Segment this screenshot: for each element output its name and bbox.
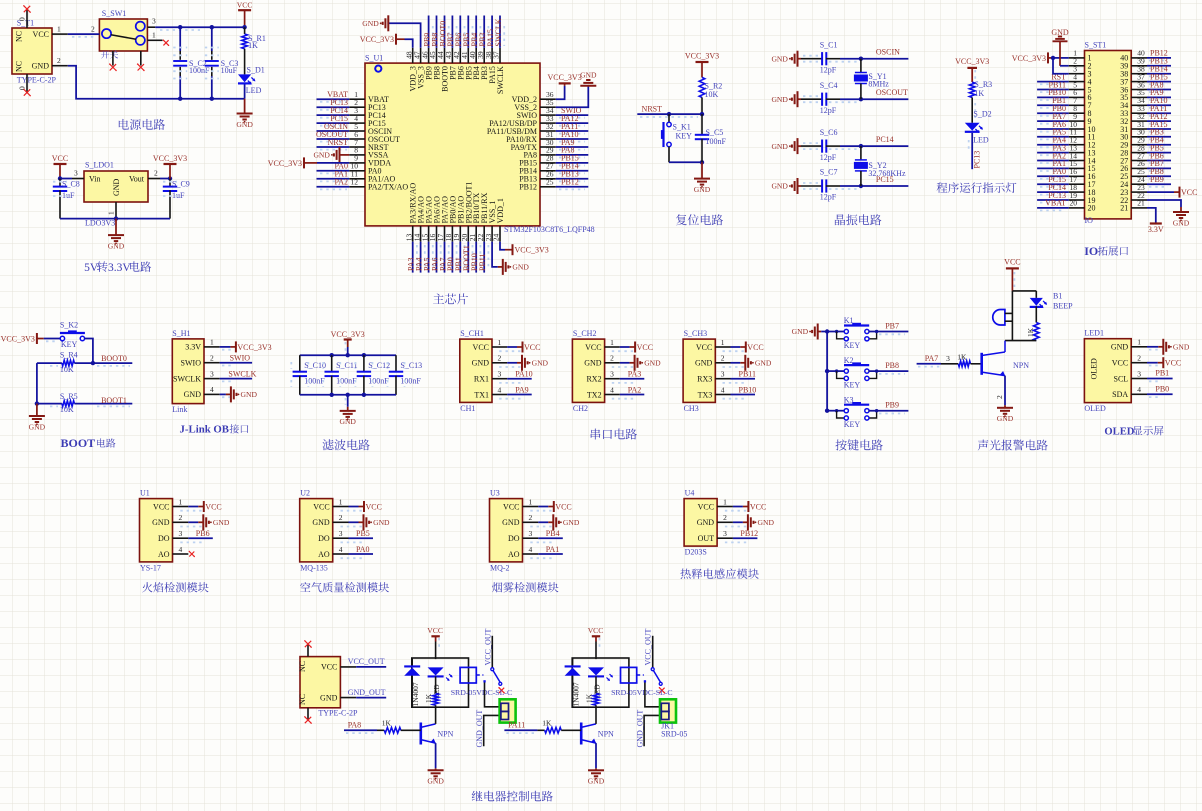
svg-text:VCC_3V3: VCC_3V3 (268, 159, 302, 168)
svg-text:GND: GND (697, 518, 715, 527)
svg-text:1N4007: 1N4007 (571, 682, 580, 706)
svg-text:4: 4 (529, 545, 533, 554)
svg-text:PB9: PB9 (1150, 175, 1164, 184)
svg-text:3.3V: 3.3V (185, 343, 201, 352)
svg-text:2: 2 (339, 513, 343, 522)
svg-text:PA11: PA11 (508, 721, 525, 730)
svg-text:2: 2 (610, 354, 614, 363)
svg-text:BOOT1: BOOT1 (101, 396, 127, 405)
svg-text:VCC: VCC (473, 343, 489, 352)
svg-text:VCC: VCC (585, 343, 601, 352)
svg-text:21: 21 (1120, 204, 1128, 213)
svg-text:2: 2 (179, 513, 183, 522)
svg-text:PB11: PB11 (739, 370, 757, 379)
svg-text:S_LDO1: S_LDO1 (85, 161, 114, 170)
svg-text:NC: NC (15, 31, 24, 42)
svg-text:KEY: KEY (844, 420, 861, 429)
svg-text:CH1: CH1 (460, 404, 475, 413)
svg-text:VBAT: VBAT (1045, 199, 1066, 208)
svg-text:NRST: NRST (642, 104, 663, 113)
svg-text:PA3: PA3 (628, 370, 642, 379)
svg-text:GND: GND (1173, 343, 1190, 352)
svg-text:D203S: D203S (685, 548, 707, 557)
svg-text:GND: GND (644, 359, 661, 368)
svg-text:AO: AO (318, 550, 330, 559)
svg-text:S_K2: S_K2 (60, 320, 78, 329)
svg-text:MQ-135: MQ-135 (300, 564, 328, 573)
svg-text:GND: GND (563, 518, 580, 527)
svg-text:2: 2 (723, 513, 727, 522)
svg-text:1: 1 (57, 24, 61, 33)
svg-text:VCC_3V3: VCC_3V3 (153, 154, 187, 163)
svg-text:S_C8: S_C8 (62, 179, 80, 188)
svg-text:S_D2: S_D2 (973, 110, 991, 119)
svg-text:37: 37 (492, 51, 501, 59)
svg-text:PB5: PB5 (356, 529, 370, 538)
svg-text:VCC_OUT: VCC_OUT (348, 657, 385, 666)
svg-text:S_C6: S_C6 (820, 128, 838, 137)
svg-text:VCC_3V3: VCC_3V3 (515, 246, 549, 255)
svg-text:1: 1 (210, 338, 214, 347)
svg-text:12: 12 (351, 178, 359, 187)
svg-text:OLED: OLED (1104, 427, 1134, 438)
svg-text:0: 0 (18, 17, 27, 21)
svg-text:S_R3: S_R3 (974, 80, 992, 89)
svg-text:S_SW1: S_SW1 (102, 9, 126, 18)
svg-text:SWCLK: SWCLK (496, 66, 505, 94)
svg-text:VCC_3V3: VCC_3V3 (547, 73, 581, 82)
svg-text:GND: GND (362, 19, 379, 28)
svg-text:GND: GND (771, 54, 788, 63)
svg-text:GND: GND (29, 422, 46, 431)
svg-text:1K: 1K (957, 353, 967, 362)
svg-text:GND: GND (584, 359, 602, 368)
svg-text:VCC_3V3: VCC_3V3 (1012, 54, 1046, 63)
svg-text:PB7: PB7 (885, 322, 899, 331)
svg-text:1: 1 (529, 497, 533, 506)
svg-text:GND: GND (502, 518, 520, 527)
svg-text:4: 4 (498, 385, 502, 394)
svg-text:3: 3 (723, 529, 727, 538)
svg-text:8MHz: 8MHz (868, 80, 889, 89)
svg-text:PB1: PB1 (1155, 369, 1169, 378)
svg-text:3: 3 (210, 369, 214, 378)
svg-text:BEEP: BEEP (1053, 302, 1073, 311)
svg-text:GND: GND (580, 71, 597, 80)
svg-text:SRD-05VDC-SL-C: SRD-05VDC-SL-C (451, 688, 513, 697)
svg-text:GND: GND (1173, 218, 1190, 227)
svg-text:S_H1: S_H1 (172, 329, 190, 338)
svg-text:DO: DO (508, 534, 520, 543)
svg-text:NC: NC (15, 61, 24, 72)
svg-text:12pF: 12pF (820, 193, 837, 202)
svg-text:4: 4 (339, 545, 343, 554)
svg-text:S_C4: S_C4 (820, 81, 838, 90)
svg-text:1K: 1K (974, 89, 984, 98)
svg-text:TX3: TX3 (698, 390, 713, 399)
svg-text:VCC: VCC (205, 502, 221, 511)
svg-text:S_R5: S_R5 (60, 392, 78, 401)
svg-text:4: 4 (721, 385, 725, 394)
svg-text:PA2: PA2 (335, 178, 349, 187)
svg-text:LED: LED (246, 86, 262, 95)
svg-text:PA7: PA7 (925, 354, 939, 363)
svg-text:SWIO: SWIO (230, 354, 251, 363)
svg-text:PA10: PA10 (515, 370, 533, 379)
svg-text:VCC: VCC (1004, 258, 1020, 267)
svg-text:12pF: 12pF (820, 106, 837, 115)
svg-text:20: 20 (1088, 204, 1096, 213)
svg-text:VCC_3V3: VCC_3V3 (685, 52, 719, 61)
svg-text:OLED: OLED (1090, 358, 1099, 380)
svg-text:1: 1 (179, 497, 183, 506)
svg-text:GND_OUT: GND_OUT (348, 688, 386, 697)
svg-text:DO: DO (158, 534, 170, 543)
svg-text:VCC_3V3: VCC_3V3 (360, 35, 394, 44)
svg-text:1uF: 1uF (62, 191, 75, 200)
svg-text:Vin: Vin (89, 175, 101, 184)
svg-text:STM32F103C8T6_LQFP48: STM32F103C8T6_LQFP48 (504, 225, 595, 234)
svg-text:U1: U1 (140, 488, 150, 497)
svg-text:GND: GND (32, 62, 50, 71)
svg-text:SWIO: SWIO (181, 359, 202, 368)
svg-text:PA9: PA9 (515, 385, 529, 394)
svg-text:GND: GND (771, 95, 788, 104)
svg-text:1K: 1K (585, 693, 594, 703)
svg-text:VCC: VCC (1181, 188, 1197, 197)
svg-text:PB4: PB4 (546, 529, 560, 538)
svg-text:PA2/TX/AO: PA2/TX/AO (368, 183, 408, 192)
svg-text:SRD-05VDC-SL-C: SRD-05VDC-SL-C (611, 688, 673, 697)
svg-text:20: 20 (1070, 199, 1078, 208)
svg-text:S_CH2: S_CH2 (573, 329, 597, 338)
svg-text:SWCLK: SWCLK (228, 369, 256, 378)
svg-text:1K: 1K (382, 718, 392, 727)
svg-text:GND_OUT: GND_OUT (635, 710, 644, 748)
svg-text:OSCIN: OSCIN (876, 48, 900, 57)
svg-text:21: 21 (1137, 199, 1145, 208)
svg-text:VCC: VCC (747, 343, 763, 352)
svg-text:GND: GND (427, 777, 444, 786)
svg-text:3: 3 (1137, 369, 1141, 378)
svg-text:2: 2 (154, 169, 158, 178)
svg-text:3: 3 (74, 169, 78, 178)
svg-text:VCC_OUT: VCC_OUT (483, 628, 492, 665)
svg-text:B1: B1 (1053, 291, 1062, 300)
svg-text:1: 1 (723, 497, 727, 506)
svg-text:NPN: NPN (1013, 361, 1029, 370)
svg-text:S_C7: S_C7 (820, 168, 838, 177)
svg-text:GND: GND (108, 241, 125, 250)
svg-text:S_U1: S_U1 (365, 54, 383, 63)
svg-text:4: 4 (610, 385, 614, 394)
svg-text:PC14: PC14 (876, 135, 894, 144)
svg-text:S_R2: S_R2 (705, 81, 723, 90)
svg-text:VCC_3V3: VCC_3V3 (1, 334, 35, 343)
svg-text:4: 4 (210, 385, 214, 394)
svg-text:2: 2 (210, 354, 214, 363)
svg-text:PA0: PA0 (356, 545, 370, 554)
svg-text:VCC: VCC (637, 343, 653, 352)
svg-text:CH3: CH3 (684, 404, 699, 413)
svg-text:GND: GND (312, 518, 330, 527)
svg-text:NPN: NPN (598, 730, 614, 739)
svg-text:1: 1 (107, 211, 116, 215)
svg-text:32.768KHz: 32.768KHz (868, 169, 906, 178)
svg-text:GND: GND (112, 178, 121, 196)
svg-text:GND: GND (1111, 343, 1129, 352)
svg-text:10uF: 10uF (221, 66, 238, 75)
svg-text:SCL: SCL (1114, 374, 1129, 383)
svg-text:1: 1 (721, 338, 725, 347)
svg-text:3: 3 (152, 17, 156, 26)
svg-text:GND: GND (320, 693, 338, 702)
svg-text:1K: 1K (1026, 327, 1035, 337)
svg-text:2: 2 (57, 56, 61, 65)
svg-text:2: 2 (91, 24, 95, 33)
svg-text:GND: GND (313, 151, 330, 160)
svg-text:VCC_3V3: VCC_3V3 (237, 343, 271, 352)
svg-text:KEY: KEY (676, 131, 693, 140)
svg-text:VCC: VCC (524, 343, 540, 352)
svg-text:3: 3 (946, 354, 950, 363)
svg-text:U4: U4 (685, 488, 695, 497)
svg-text:GND: GND (755, 359, 772, 368)
svg-text:3.3V: 3.3V (108, 262, 131, 274)
svg-text:VCC: VCC (366, 502, 382, 511)
svg-text:S_R4: S_R4 (60, 350, 78, 359)
svg-text:VCC_3V3: VCC_3V3 (955, 57, 989, 66)
svg-text:GND: GND (694, 185, 711, 194)
svg-text:1uF: 1uF (172, 191, 185, 200)
svg-text:PB12: PB12 (519, 183, 537, 192)
svg-text:2: 2 (1137, 354, 1141, 363)
svg-text:OUT: OUT (698, 534, 715, 543)
svg-text:NPN: NPN (437, 730, 453, 739)
svg-text:NC: NC (298, 694, 307, 705)
svg-text:GND: GND (771, 182, 788, 191)
svg-text:GND: GND (373, 518, 390, 527)
svg-text:SRD-05: SRD-05 (661, 730, 687, 739)
svg-text:1: 1 (498, 338, 502, 347)
svg-text:GND: GND (997, 414, 1014, 423)
svg-text:LDO3V3: LDO3V3 (85, 219, 115, 228)
svg-text:1: 1 (339, 497, 343, 506)
svg-text:3: 3 (610, 370, 614, 379)
svg-text:VCC: VCC (321, 663, 337, 672)
svg-text:PB12: PB12 (740, 529, 758, 538)
svg-text:VCC: VCC (1165, 359, 1181, 368)
svg-text:GND: GND (532, 359, 549, 368)
svg-text:K1: K1 (844, 316, 854, 325)
svg-text:BOOT0: BOOT0 (101, 354, 127, 363)
svg-text:1: 1 (1137, 338, 1141, 347)
svg-text:PA2: PA2 (628, 385, 642, 394)
svg-text:VCC: VCC (153, 502, 169, 511)
svg-text:OLED: OLED (1084, 404, 1106, 413)
svg-text:GND: GND (213, 518, 230, 527)
svg-text:S_CH3: S_CH3 (684, 329, 708, 338)
svg-text:4: 4 (1137, 385, 1141, 394)
svg-text:24: 24 (492, 234, 501, 242)
svg-text:TX1: TX1 (474, 390, 489, 399)
svg-text:S_CH1: S_CH1 (460, 329, 484, 338)
svg-text:K3: K3 (844, 395, 854, 404)
svg-text:1K: 1K (248, 41, 258, 50)
svg-text:1: 1 (610, 338, 614, 347)
svg-text:GND: GND (339, 417, 356, 426)
svg-text:CH2: CH2 (573, 404, 588, 413)
svg-text:GND: GND (184, 390, 202, 399)
svg-text:100nF: 100nF (336, 377, 357, 386)
svg-text:PB10: PB10 (739, 385, 757, 394)
svg-text:S_D1: S_D1 (247, 66, 265, 75)
svg-text:1K: 1K (542, 718, 552, 727)
svg-text:1N4007: 1N4007 (411, 682, 420, 706)
svg-text:GND_OUT: GND_OUT (475, 710, 484, 748)
svg-text:SDA: SDA (1112, 390, 1128, 399)
svg-text:PB6: PB6 (196, 529, 210, 538)
svg-text:VCC: VCC (33, 30, 49, 39)
svg-text:S_C9: S_C9 (172, 179, 190, 188)
svg-text:GND: GND (771, 142, 788, 151)
svg-text:GND: GND (241, 390, 258, 399)
svg-text:VCC: VCC (1112, 359, 1128, 368)
svg-text:3: 3 (179, 529, 183, 538)
svg-text:NC: NC (298, 661, 307, 672)
svg-text:100nF: 100nF (368, 377, 389, 386)
svg-text:VCC: VCC (696, 343, 712, 352)
svg-text:PC13: PC13 (972, 151, 981, 169)
svg-text:Vout: Vout (129, 175, 145, 184)
svg-text:3: 3 (339, 529, 343, 538)
svg-text:GND: GND (588, 777, 605, 786)
svg-text:PB0: PB0 (1155, 385, 1169, 394)
svg-text:3: 3 (498, 370, 502, 379)
svg-text:10K: 10K (60, 405, 74, 414)
svg-text:VCC: VCC (698, 502, 714, 511)
svg-text:S_C1: S_C1 (820, 40, 838, 49)
svg-text:VDD_1: VDD_1 (496, 198, 505, 223)
svg-text:5V: 5V (84, 262, 99, 274)
svg-text:PB12: PB12 (561, 178, 579, 187)
svg-text:2: 2 (995, 395, 1004, 399)
svg-text:100nF: 100nF (706, 137, 727, 146)
svg-text:MQ-2: MQ-2 (490, 564, 510, 573)
svg-text:12pF: 12pF (820, 153, 837, 162)
svg-text:K2: K2 (844, 356, 854, 365)
svg-text:VCC_3V3: VCC_3V3 (331, 330, 365, 339)
svg-text:SWCLK: SWCLK (173, 374, 201, 383)
svg-text:2: 2 (529, 513, 533, 522)
svg-text:VCC: VCC (555, 502, 571, 511)
svg-text:KEY: KEY (844, 381, 861, 390)
svg-text:3: 3 (721, 370, 725, 379)
svg-text:12pF: 12pF (820, 65, 837, 74)
svg-text:IO: IO (1084, 244, 1098, 258)
svg-text:PB8: PB8 (885, 361, 899, 370)
svg-text:10K: 10K (705, 90, 719, 99)
svg-text:Link: Link (172, 405, 187, 414)
svg-text:1: 1 (152, 31, 156, 40)
svg-text:TX2: TX2 (587, 390, 602, 399)
svg-text:S_ST1: S_ST1 (1085, 41, 1107, 50)
svg-text:VCC: VCC (503, 502, 519, 511)
svg-text:KEY: KEY (844, 341, 861, 350)
svg-text:0: 0 (18, 86, 27, 90)
svg-text:PA1: PA1 (546, 545, 560, 554)
svg-text:GND: GND (152, 518, 170, 527)
svg-text:GND: GND (472, 359, 490, 368)
svg-text:3.3V: 3.3V (1148, 225, 1164, 234)
svg-text:GND: GND (792, 327, 809, 336)
svg-text:PB11: PB11 (478, 254, 487, 272)
svg-text:GND: GND (512, 263, 529, 272)
svg-text:25: 25 (546, 178, 554, 187)
svg-text:2: 2 (498, 354, 502, 363)
svg-text:1K: 1K (424, 693, 433, 703)
svg-text:GND: GND (236, 120, 253, 129)
svg-text:PA8: PA8 (348, 721, 362, 730)
svg-text:J-Link OB: J-Link OB (180, 424, 230, 436)
svg-text:10K: 10K (60, 365, 74, 374)
svg-text:DO: DO (318, 534, 330, 543)
svg-text:VCC: VCC (427, 626, 443, 635)
svg-text:GND: GND (695, 359, 713, 368)
svg-text:U2: U2 (300, 488, 310, 497)
svg-text:2: 2 (721, 354, 725, 363)
svg-text:VCC: VCC (588, 626, 604, 635)
svg-text:AO: AO (158, 550, 170, 559)
svg-text:TYPE-C-2P: TYPE-C-2P (17, 76, 57, 85)
svg-text:GND: GND (758, 518, 775, 527)
svg-text:VCC_OUT: VCC_OUT (644, 628, 653, 665)
svg-text:AO: AO (508, 550, 520, 559)
svg-text:VCC: VCC (52, 154, 68, 163)
svg-text:BOOT: BOOT (61, 436, 96, 450)
svg-text:NRST: NRST (328, 138, 349, 147)
svg-text:VCC: VCC (313, 502, 329, 511)
svg-text:RX1: RX1 (474, 375, 489, 384)
svg-text:OSCOUT: OSCOUT (876, 88, 908, 97)
svg-text:SWCLK: SWCLK (494, 18, 503, 46)
svg-text:TYPE-C-2P: TYPE-C-2P (318, 708, 358, 717)
svg-text:IO: IO (1085, 216, 1094, 225)
svg-text:S_C5: S_C5 (706, 128, 724, 137)
svg-text:PB9: PB9 (885, 401, 899, 410)
svg-text:YS-17: YS-17 (140, 564, 161, 573)
svg-text:LED1: LED1 (1084, 329, 1104, 338)
svg-text:KEY: KEY (61, 340, 78, 349)
svg-text:S_K1: S_K1 (673, 123, 691, 132)
svg-text:VCC: VCC (750, 502, 766, 511)
svg-text:VCC: VCC (237, 1, 253, 10)
svg-text:100nF: 100nF (400, 377, 421, 386)
svg-text:RX3: RX3 (697, 375, 712, 384)
svg-text:4: 4 (179, 545, 183, 554)
svg-text:U3: U3 (490, 488, 500, 497)
svg-text:100nF: 100nF (304, 377, 325, 386)
svg-text:LED: LED (973, 136, 989, 145)
svg-text:3: 3 (529, 529, 533, 538)
svg-text:RX2: RX2 (586, 375, 601, 384)
